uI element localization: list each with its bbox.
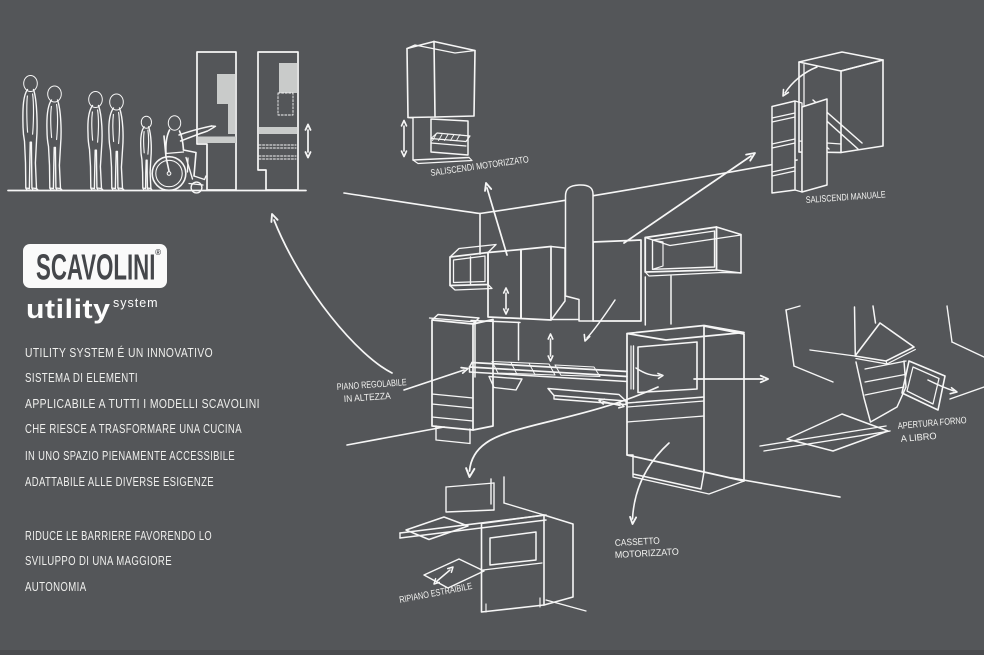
svg-text:MOTORIZZATO: MOTORIZZATO xyxy=(615,546,679,560)
svg-text:CASSETTO: CASSETTO xyxy=(615,535,661,548)
svg-text:PIANO REGOLABILE: PIANO REGOLABILE xyxy=(336,376,407,392)
svg-text:APERTURA FORNO: APERTURA FORNO xyxy=(897,414,967,431)
svg-text:A LIBRO: A LIBRO xyxy=(900,430,937,444)
svg-text:IN ALTEZZA: IN ALTEZZA xyxy=(343,390,391,404)
svg-text:SALISCENDI MANUALE: SALISCENDI MANUALE xyxy=(805,188,886,205)
svg-text:SALISCENDI MOTORIZZATO: SALISCENDI MOTORIZZATO xyxy=(430,153,530,178)
